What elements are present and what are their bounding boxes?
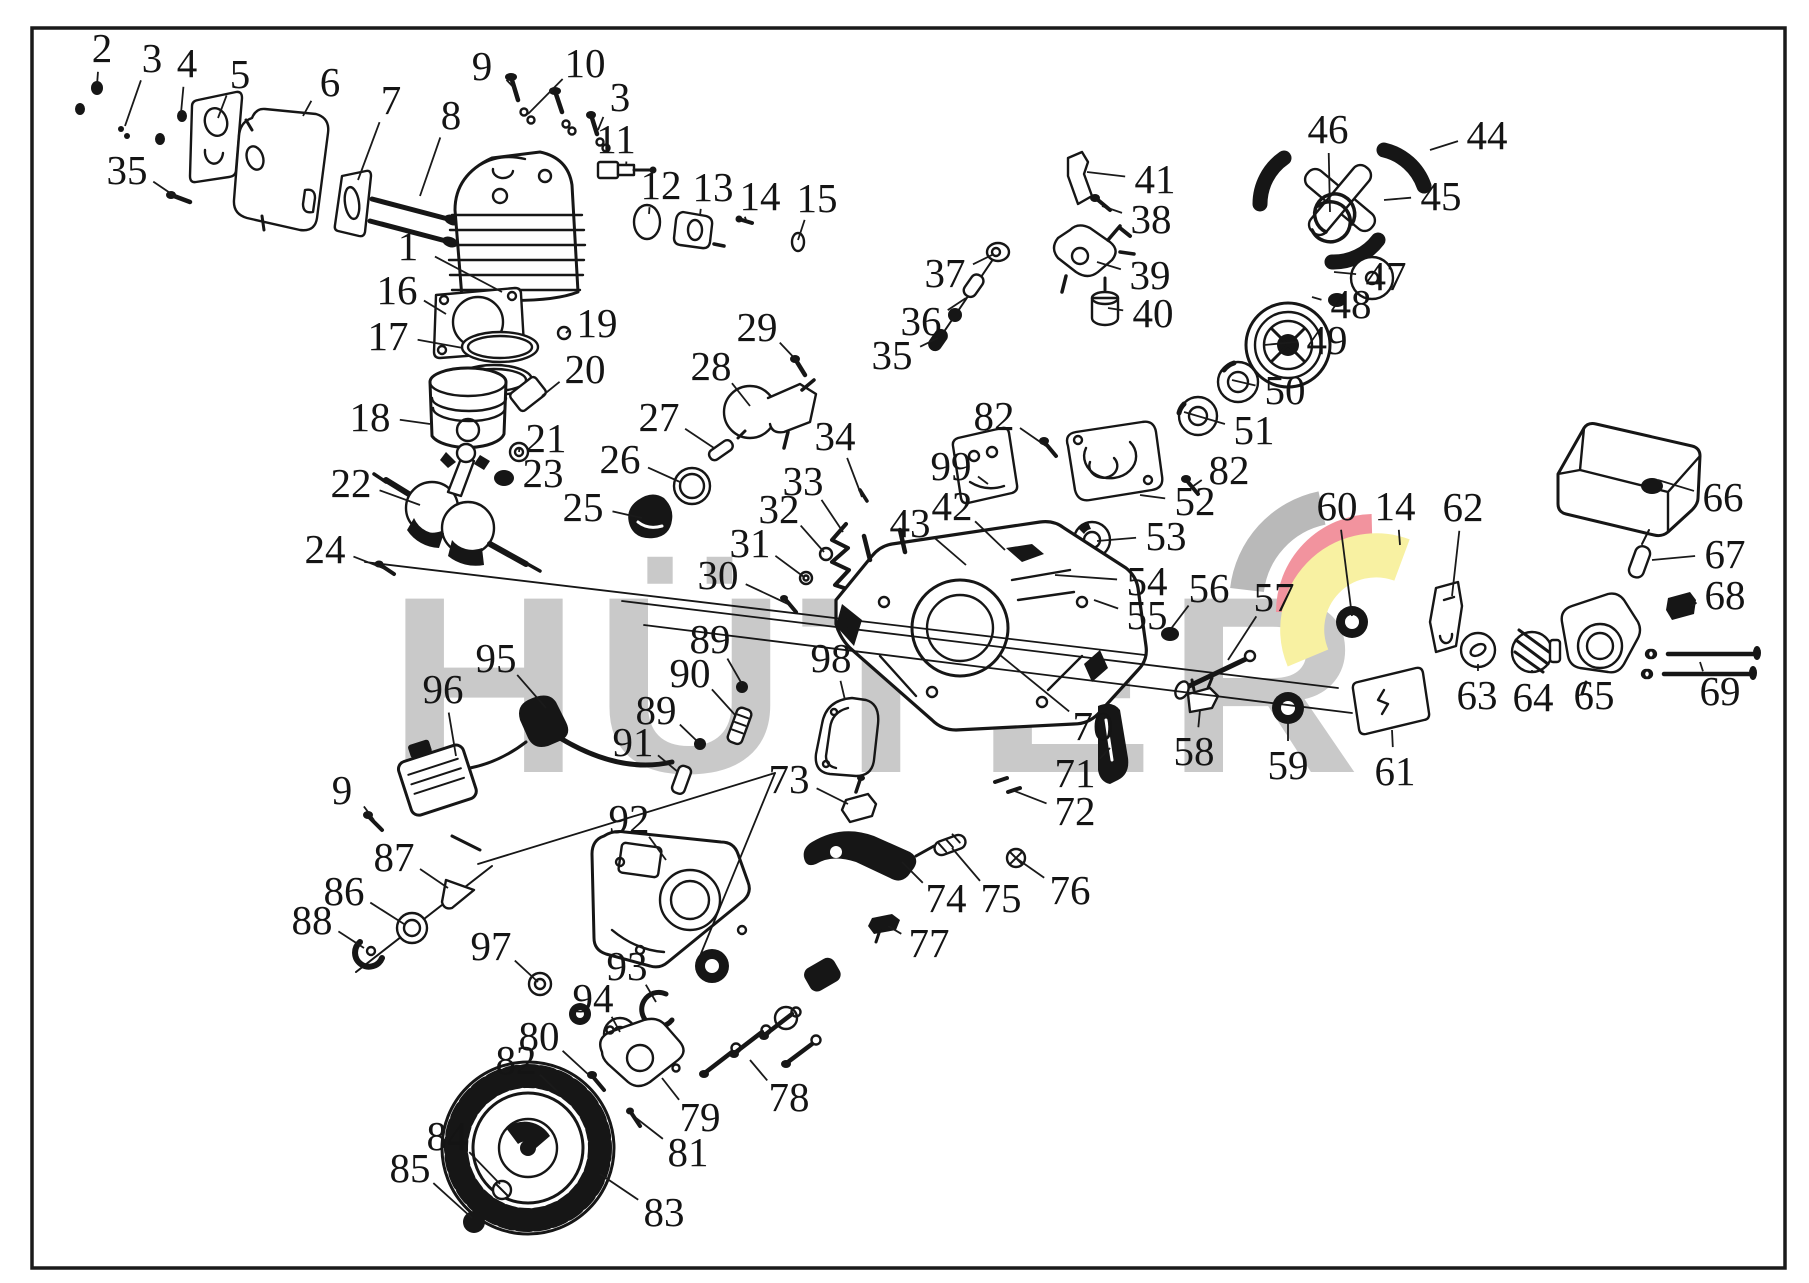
part-label-62: 62 [1443, 484, 1484, 530]
part-label-60: 60 [1317, 483, 1358, 529]
part-label-91: 91 [613, 719, 654, 765]
leader-line-8 [420, 137, 440, 196]
part-label-3: 3 [142, 35, 163, 81]
part-label-20: 20 [565, 346, 606, 392]
part-label-3: 3 [610, 74, 631, 120]
leader-line-2 [97, 72, 98, 85]
part-label-6: 6 [320, 59, 341, 105]
part-label-13: 13 [693, 164, 734, 210]
part-label-44: 44 [1467, 112, 1508, 158]
part-label-28: 28 [691, 343, 732, 389]
part-label-87: 87 [374, 834, 415, 880]
part-label-98: 98 [811, 635, 852, 681]
muffler-body [234, 109, 328, 230]
part-label-40: 40 [1133, 290, 1174, 336]
part-label-97: 97 [471, 923, 512, 969]
parts-diagram-page: HÜTER [0, 0, 1809, 1283]
part-label-8: 8 [441, 92, 462, 138]
part-label-4: 4 [177, 40, 198, 86]
part-label-61: 61 [1375, 748, 1416, 794]
part-label-25: 25 [563, 484, 604, 530]
part-label-59: 59 [1268, 742, 1309, 788]
leader-line-48 [1312, 297, 1321, 300]
part-label-74: 74 [926, 875, 967, 921]
leader-line-82 [1020, 428, 1046, 446]
leader-line-79 [662, 1078, 679, 1100]
part-label-77: 77 [909, 920, 950, 966]
part-label-56: 56 [1189, 565, 1230, 611]
part-label-95: 95 [476, 635, 517, 681]
part-label-57: 57 [1254, 574, 1295, 620]
part-label-78: 78 [769, 1074, 810, 1120]
part-label-84: 84 [427, 1113, 468, 1159]
leader-line-14 [1399, 530, 1400, 545]
part-label-11: 11 [596, 116, 635, 162]
part-label-7: 7 [381, 77, 402, 123]
part-label-9: 9 [472, 43, 493, 89]
leader-line-35 [153, 182, 176, 197]
leader-line-44 [1430, 141, 1458, 150]
part-label-43: 43 [890, 500, 931, 546]
leader-line-29 [780, 343, 799, 363]
part-label-42: 42 [932, 483, 973, 529]
leader-line-34 [847, 458, 862, 497]
leader-line-38 [1102, 206, 1122, 213]
part-label-76: 76 [1050, 867, 1091, 913]
cylinder [449, 152, 585, 300]
part-label-37: 37 [925, 250, 966, 296]
part-label-53: 53 [1146, 513, 1187, 559]
part-label-5: 5 [230, 51, 251, 97]
part-label-72: 72 [1055, 788, 1096, 834]
leader-line-97 [515, 961, 538, 982]
part-label-70: 70 [1073, 703, 1114, 749]
part-label-69: 69 [1700, 668, 1741, 714]
leader-line-12 [649, 207, 650, 214]
part-label-82: 82 [496, 1037, 537, 1083]
leader-line-52 [1140, 495, 1165, 498]
part-label-1: 1 [398, 223, 419, 269]
part-label-30: 30 [698, 552, 739, 598]
part-label-29: 29 [737, 304, 778, 350]
small-hardware-dots [75, 81, 187, 145]
part-label-35: 35 [872, 332, 913, 378]
part-label-45: 45 [1421, 173, 1462, 219]
leader-line-81 [636, 1118, 663, 1139]
part-label-55: 55 [1127, 592, 1168, 638]
part-label-10: 10 [565, 40, 606, 86]
leader-line-86 [370, 903, 404, 924]
part-label-85: 85 [390, 1145, 431, 1191]
leader-line-3 [125, 80, 141, 126]
part-label-67: 67 [1705, 531, 1746, 577]
leader-line-45 [1384, 198, 1411, 200]
leader-line-46 [1329, 153, 1330, 212]
part-label-63: 63 [1457, 672, 1498, 718]
leader-line-4 [181, 87, 183, 113]
part-label-22: 22 [331, 460, 372, 506]
part-label-83: 83 [644, 1189, 685, 1235]
leader-line-61 [1392, 730, 1393, 747]
leader-line-67 [1652, 556, 1695, 560]
part-label-14: 14 [740, 173, 781, 219]
part-label-82: 82 [974, 393, 1015, 439]
part-label-26: 26 [600, 436, 641, 482]
leader-line-18 [400, 420, 430, 424]
throttle-linkage [1054, 152, 1134, 325]
leader-line-41 [1087, 172, 1125, 177]
part-label-24: 24 [305, 526, 346, 572]
part-label-73: 73 [769, 756, 810, 802]
part-label-2: 2 [92, 25, 113, 71]
part-label-18: 18 [350, 394, 391, 440]
leader-line-87 [420, 869, 448, 888]
clutch-assembly [1260, 141, 1424, 262]
flywheel [442, 1062, 614, 1234]
part-label-17: 17 [368, 313, 409, 359]
part-label-9: 9 [332, 767, 353, 813]
parts-artwork [75, 73, 1761, 1234]
part-label-92: 92 [609, 796, 650, 842]
part-label-81: 81 [668, 1129, 709, 1175]
part-label-46: 46 [1308, 106, 1349, 152]
exploded-diagram-canvas: HÜTER [0, 0, 1809, 1283]
part-label-66: 66 [1703, 474, 1744, 520]
part-label-88: 88 [292, 897, 333, 943]
part-label-19: 19 [577, 300, 618, 346]
part-label-23: 23 [523, 450, 564, 496]
part-label-47: 47 [1366, 253, 1407, 299]
part-label-68: 68 [1705, 572, 1746, 618]
part-label-94: 94 [573, 975, 614, 1021]
part-label-49: 49 [1307, 317, 1348, 363]
part-label-16: 16 [377, 267, 418, 313]
part-label-58: 58 [1174, 728, 1215, 774]
part-label-75: 75 [981, 875, 1022, 921]
part-label-96: 96 [423, 666, 464, 712]
part-label-34: 34 [815, 413, 856, 459]
muffler-plate [190, 92, 242, 182]
part-label-65: 65 [1574, 672, 1615, 718]
leader-line-27 [685, 429, 714, 448]
part-label-38: 38 [1131, 196, 1172, 242]
muffler-gasket [335, 171, 371, 236]
part-label-14: 14 [1375, 483, 1416, 529]
part-label-35: 35 [107, 147, 148, 193]
leader-line-78 [750, 1060, 767, 1080]
part-label-12: 12 [641, 162, 682, 208]
part-label-64: 64 [1513, 674, 1554, 720]
leader-line-33 [822, 500, 843, 532]
part-label-27: 27 [639, 394, 680, 440]
part-label-15: 15 [797, 175, 838, 221]
leader-line-26 [648, 468, 680, 482]
